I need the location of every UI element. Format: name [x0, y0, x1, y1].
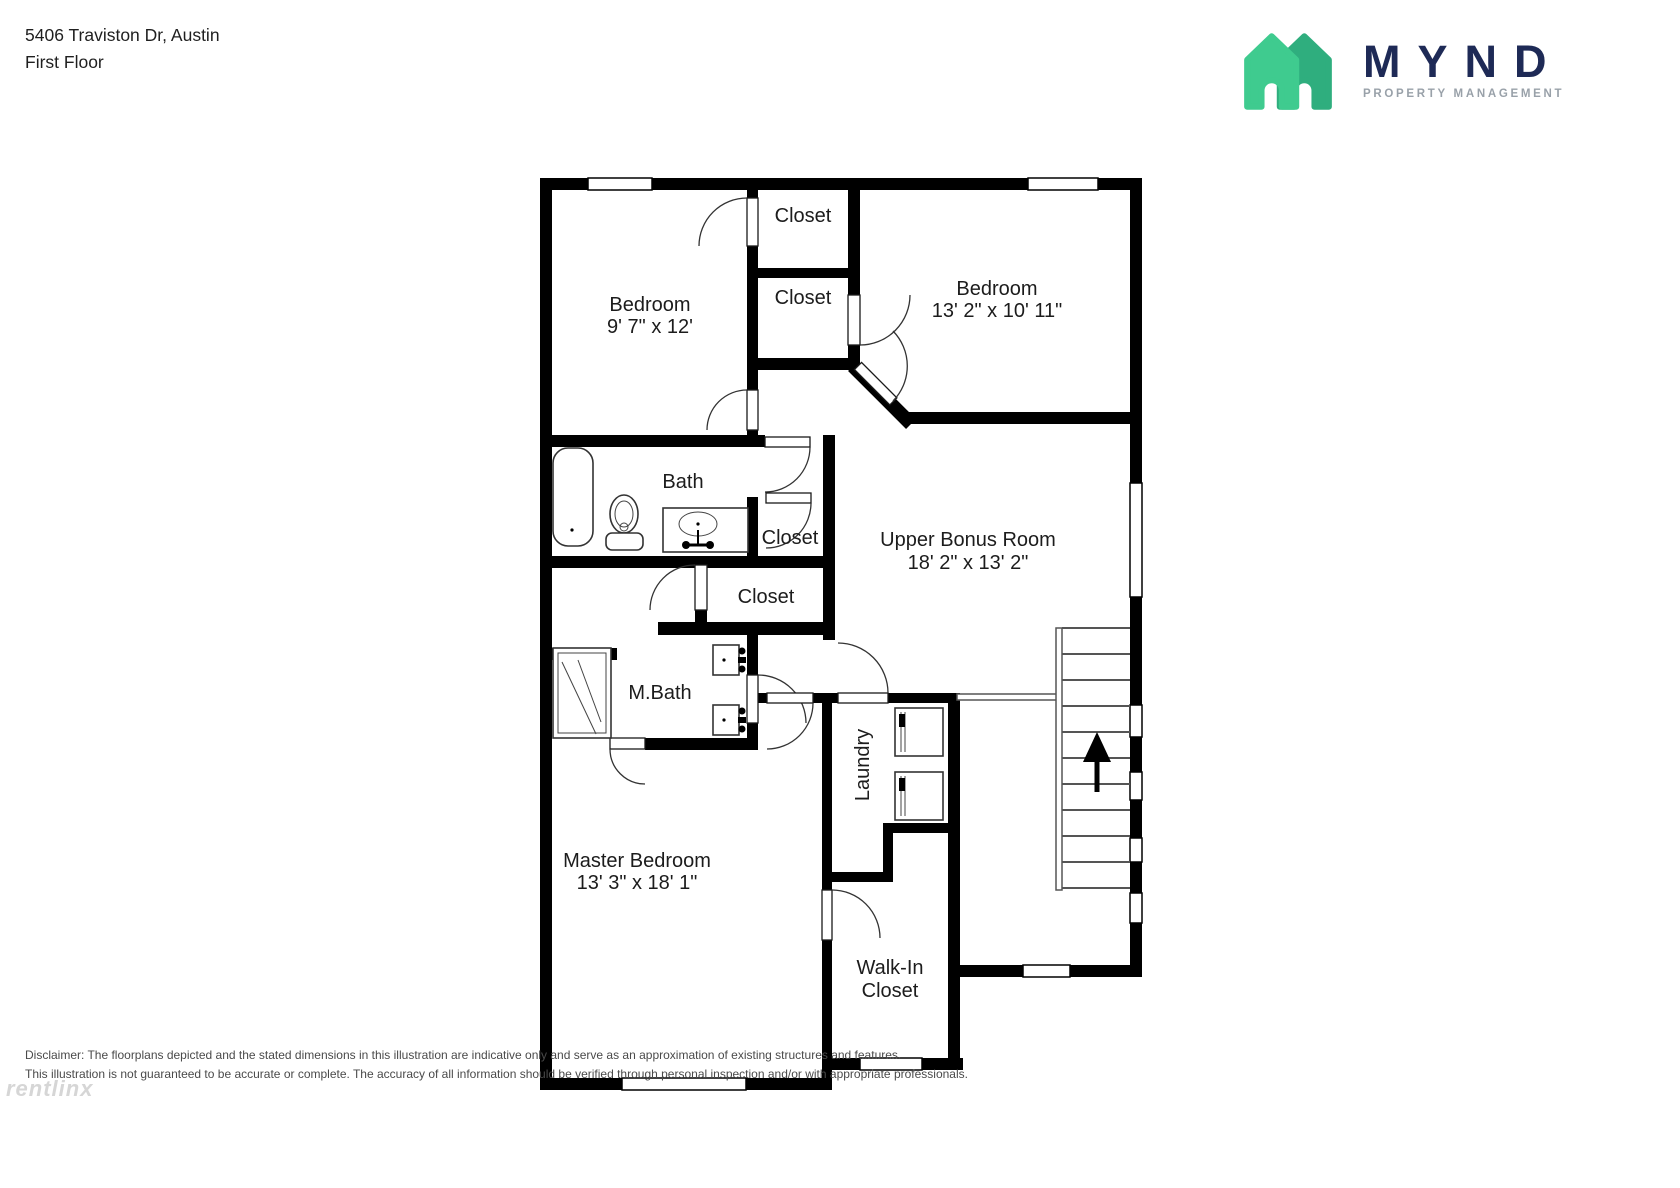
room-label-closet-top-1: Closet [775, 205, 832, 227]
room-dims-bedroom-2: 13' 2" x 10' 11" [932, 300, 1062, 322]
mbath-vanity-sink-2 [713, 705, 746, 735]
bathtub-icon [553, 448, 593, 546]
staircase [957, 628, 1130, 890]
room-label-upper-bonus: Upper Bonus Room [880, 529, 1056, 551]
floorplan-page: { "header": { "address": "5406 Traviston… [0, 0, 1680, 1188]
washer-icon [895, 708, 943, 756]
floorplan-svg: Bedroom 9' 7" x 12' Closet Closet Bedroo… [0, 0, 1680, 1188]
room-label-bedroom-2: Bedroom [956, 278, 1037, 300]
room-label-walkin-line2: Closet [862, 980, 919, 1002]
room-label-closet-mid-upper: Closet [762, 527, 819, 549]
toilet-icon [606, 495, 643, 550]
bath-sink-icon [663, 508, 748, 552]
room-label-bath: Bath [662, 471, 703, 493]
room-label-walkin-line1: Walk-In [856, 957, 923, 979]
mbath-vanity-sink-1 [713, 645, 746, 675]
dryer-icon [895, 772, 943, 820]
room-label-laundry: Laundry [852, 729, 874, 801]
room-labels: Bedroom 9' 7" x 12' Closet Closet Bedroo… [563, 205, 1062, 1002]
shower-icon [553, 648, 611, 738]
room-dims-master: 13' 3" x 18' 1" [577, 872, 698, 894]
room-label-closet-mid-lower: Closet [738, 586, 795, 608]
disclaimer-line-2: This illustration is not guaranteed to b… [25, 1065, 968, 1084]
disclaimer-line-1: Disclaimer: The floorplans depicted and … [25, 1046, 968, 1065]
room-label-master: Master Bedroom [563, 850, 711, 872]
room-dims-upper-bonus: 18' 2" x 13' 2" [908, 552, 1029, 574]
watermark-rentlinx: rentlinx [6, 1076, 93, 1102]
room-dims-bedroom-1: 9' 7" x 12' [607, 316, 693, 338]
room-label-closet-top-2: Closet [775, 287, 832, 309]
disclaimer: Disclaimer: The floorplans depicted and … [25, 1046, 968, 1084]
room-label-mbath: M.Bath [628, 682, 691, 704]
room-label-bedroom-1: Bedroom [609, 294, 690, 316]
